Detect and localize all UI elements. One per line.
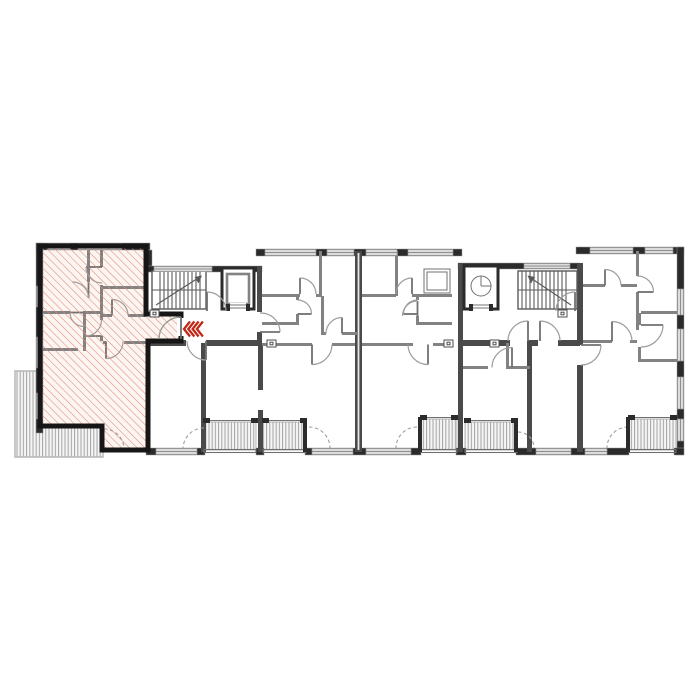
window <box>585 449 607 455</box>
balcony-4-deck <box>465 422 517 450</box>
stair-core-2 <box>464 266 577 311</box>
window <box>366 250 397 256</box>
balcony-1-deck <box>204 422 256 450</box>
meter-box <box>150 310 159 317</box>
window <box>678 289 684 315</box>
meter-box <box>444 340 453 347</box>
balcony-3-deck <box>421 419 457 450</box>
window <box>408 250 453 256</box>
window <box>156 449 197 455</box>
window <box>678 419 684 441</box>
balconies <box>204 419 676 450</box>
staircase-2 <box>518 271 577 309</box>
window <box>366 449 411 455</box>
window <box>265 250 316 256</box>
window <box>678 329 684 361</box>
meter-box <box>490 340 499 347</box>
elevator-2 <box>464 266 498 311</box>
balcony-5-deck <box>629 419 676 450</box>
staircase-1 <box>152 271 206 309</box>
floor-plan-canvas <box>0 0 700 700</box>
entrance-marker <box>184 322 203 337</box>
window <box>590 248 633 254</box>
window <box>154 267 212 272</box>
window <box>524 264 570 269</box>
window <box>327 250 354 256</box>
meter-box <box>558 310 567 317</box>
balcony-2-deck <box>263 422 306 450</box>
window <box>678 377 684 409</box>
elevator-1 <box>222 268 254 311</box>
stair-core-1 <box>152 268 254 311</box>
window <box>312 449 353 455</box>
meter-box <box>267 340 276 347</box>
window <box>645 248 673 254</box>
window <box>536 449 571 455</box>
